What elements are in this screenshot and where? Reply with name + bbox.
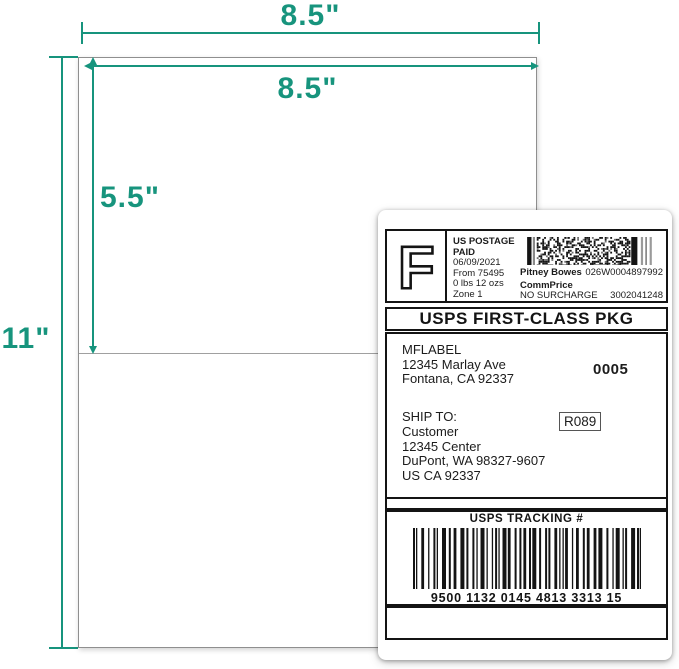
batch-number: 0005 xyxy=(593,361,628,378)
recipient-country: US CA 92337 xyxy=(402,469,545,484)
meter-number: 026W0004897992 xyxy=(585,268,663,278)
sender-address: MFLABEL 12345 Marlay Ave Fontana, CA 923… xyxy=(402,343,514,387)
sheet-height-dimension-label: 11" xyxy=(0,323,52,355)
sender-street: 12345 Marlay Ave xyxy=(402,358,514,373)
dimension-tick-bottom xyxy=(49,647,78,649)
shipping-label-sample: F US POSTAGE PAID 06/09/2021 From 75495 … xyxy=(378,210,672,660)
postage-line: US POSTAGE xyxy=(453,237,517,248)
route-code-badge: R089 xyxy=(559,412,601,431)
sender-city: Fontana, CA 92337 xyxy=(402,372,514,387)
product-dimension-diagram: 8.5" 11" 8.5" 5.5" F US POSTAGE PAID 06/ xyxy=(0,0,679,669)
label-width-dimension-label: 8.5" xyxy=(78,73,537,105)
postage-line: Zone 1 xyxy=(453,290,517,301)
postage-info-block: US POSTAGE PAID 06/09/2021 From 75495 0 … xyxy=(447,231,517,301)
tracking-barcode-icon xyxy=(413,528,641,589)
recipient-address: SHIP TO: Customer 12345 Center DuPont, W… xyxy=(402,410,545,484)
service-class-banner: USPS FIRST-CLASS PKG xyxy=(385,307,668,331)
dimension-tick-top xyxy=(49,56,78,58)
surcharge-note: NO SURCHARGE xyxy=(520,290,598,301)
sheet-width-dimension-line xyxy=(82,32,540,34)
recipient-name: Customer xyxy=(402,425,545,440)
recipient-street: 12345 Center xyxy=(402,440,545,455)
address-section: MFLABEL 12345 Marlay Ave Fontana, CA 923… xyxy=(385,332,668,499)
dimension-tick-left xyxy=(81,22,83,44)
arrow-head-up-icon xyxy=(89,57,97,65)
arrow-head-right-icon xyxy=(531,62,539,70)
tracking-section: USPS TRACKING # 9500 1132 0145 4813 3313… xyxy=(385,497,668,640)
account-number: 3002041248 xyxy=(610,291,663,301)
tracking-number: 9500 1132 0145 4813 3313 15 xyxy=(387,591,666,605)
postage-meter-block: Pitney Bowes 026W0004897992 CommPrice NO… xyxy=(517,231,666,301)
carrier-name: Pitney Bowes xyxy=(519,268,582,278)
label-height-dimension-label: 5.5" xyxy=(100,182,160,214)
postage-section: F US POSTAGE PAID 06/09/2021 From 75495 … xyxy=(385,229,668,303)
divider-bar xyxy=(387,604,666,608)
f-logo-icon: F xyxy=(394,235,438,297)
first-class-f-logo: F xyxy=(387,231,447,301)
label-width-arrow-line xyxy=(89,65,531,67)
meter-2d-barcode-icon xyxy=(519,237,663,265)
sheet-height-dimension-line xyxy=(61,57,63,648)
divider-bar xyxy=(387,508,666,512)
dimension-tick-right xyxy=(538,22,540,44)
tracking-title: USPS TRACKING # xyxy=(387,513,666,525)
svg-text:F: F xyxy=(398,235,435,297)
recipient-city: DuPont, WA 98327-9607 xyxy=(402,454,545,469)
label-height-arrow-line xyxy=(92,64,94,348)
sender-name: MFLABEL xyxy=(402,343,514,358)
ship-to-label: SHIP TO: xyxy=(402,410,545,425)
arrow-head-down-icon xyxy=(89,346,97,354)
sheet-width-dimension-label: 8.5" xyxy=(82,0,539,32)
